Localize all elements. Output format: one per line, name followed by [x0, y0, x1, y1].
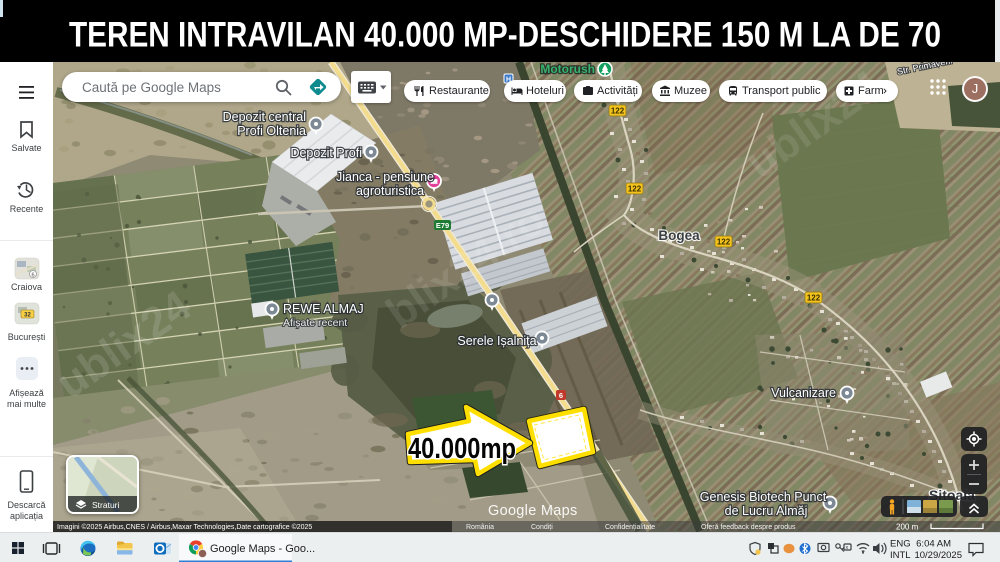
svg-text:REWE ALMAJ: REWE ALMAJ — [283, 302, 364, 316]
svg-text:40.000mp: 40.000mp — [408, 433, 516, 465]
svg-text:Depozit central: Depozit central — [223, 110, 306, 124]
svg-text:Salvate: Salvate — [11, 143, 41, 153]
svg-text:Imagini ©2025 Airbus,CNES / Ai: Imagini ©2025 Airbus,CNES / Airbus,Maxar… — [57, 523, 312, 531]
svg-text:ENG: ENG — [890, 539, 911, 550]
svg-text:mai multe: mai multe — [7, 399, 46, 409]
svg-text:6:04 AM: 6:04 AM — [916, 539, 951, 550]
svg-text:Straturi: Straturi — [92, 500, 120, 510]
svg-text:Google Maps - Goo...: Google Maps - Goo... — [210, 543, 315, 555]
svg-text:E79: E79 — [436, 221, 449, 230]
svg-text:INTL: INTL — [890, 550, 911, 561]
svg-text:Recente: Recente — [10, 204, 44, 214]
svg-text:Profi Oltenia: Profi Oltenia — [237, 124, 306, 138]
svg-text:Descarcă: Descarcă — [7, 500, 45, 510]
svg-text:Motorush: Motorush — [540, 62, 595, 76]
svg-text:România: România — [466, 524, 494, 531]
svg-text:București: București — [8, 332, 46, 342]
svg-text:200 m: 200 m — [896, 523, 919, 532]
svg-text:de Lucru Almăj: de Lucru Almăj — [725, 504, 808, 518]
svg-text:Confidențialitate: Confidențialitate — [605, 524, 655, 531]
svg-text:6: 6 — [559, 391, 563, 400]
svg-text:Craiova: Craiova — [11, 282, 42, 292]
svg-text:32: 32 — [24, 313, 31, 319]
svg-text:10/29/2025: 10/29/2025 — [914, 550, 962, 561]
svg-text:Depozit Profi: Depozit Profi — [290, 146, 362, 160]
svg-text:Jianca - pensiune: Jianca - pensiune — [336, 170, 434, 184]
svg-text:Afișează: Afișează — [9, 388, 44, 398]
svg-text:Bogea: Bogea — [658, 228, 700, 243]
svg-text:122: 122 — [717, 238, 731, 247]
svg-text:Afișate recent: Afișate recent — [283, 317, 347, 329]
svg-text:aplicația: aplicația — [10, 511, 43, 521]
svg-text:122: 122 — [611, 107, 625, 116]
svg-text:Genesis Biotech Punct: Genesis Biotech Punct — [700, 490, 827, 504]
svg-text:122: 122 — [807, 294, 821, 303]
svg-text:Google Maps: Google Maps — [488, 503, 578, 519]
svg-text:Serele Ișalnița: Serele Ișalnița — [457, 334, 536, 348]
svg-text:x: x — [846, 545, 849, 551]
svg-text:122: 122 — [628, 185, 642, 194]
svg-text:agroturistica: agroturistica — [356, 184, 424, 198]
svg-text:6: 6 — [31, 273, 34, 279]
svg-text:Oferă feedback despre produs: Oferă feedback despre produs — [701, 524, 796, 531]
svg-text:TEREN INTRAVILAN 40.000 MP-DES: TEREN INTRAVILAN 40.000 MP-DESCHIDERE 15… — [69, 15, 941, 55]
svg-text:Vulcanizare: Vulcanizare — [771, 386, 836, 400]
svg-text:Condiți: Condiți — [531, 524, 553, 531]
